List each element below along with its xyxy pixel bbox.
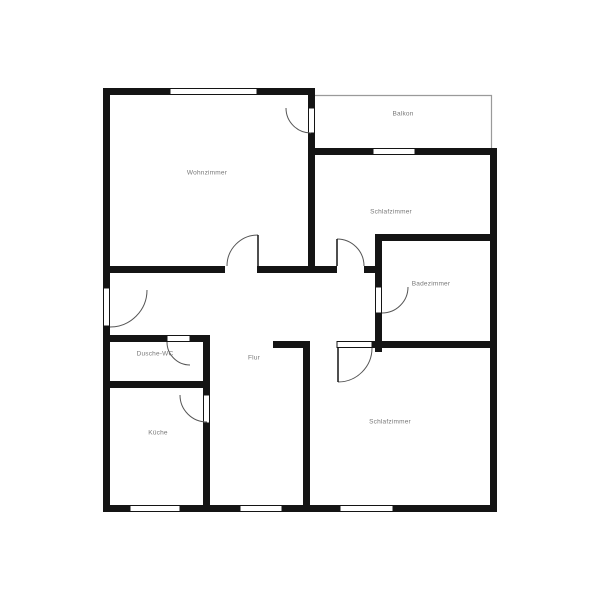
wall (415, 148, 490, 155)
wall (110, 335, 167, 342)
room-label-schlafzimmer-oben: Schlafzimmer (370, 209, 412, 216)
door-arc-balcony (286, 108, 311, 133)
wall (490, 148, 497, 512)
balcony-outline (313, 96, 492, 151)
wall (257, 266, 337, 273)
door-arc-schlafzimmer-unten (338, 348, 372, 382)
wall (393, 505, 497, 512)
wall (282, 505, 340, 512)
door-arc-entrance (110, 290, 147, 327)
room-label-balkon: Balkon (392, 111, 413, 118)
door-arc-schlafzimmer-oben (337, 239, 364, 266)
room-label-flur: Flur (248, 355, 260, 362)
window (170, 89, 257, 95)
wall (103, 505, 130, 512)
wall (308, 148, 373, 155)
door-leaf (104, 288, 110, 326)
wall (375, 234, 490, 241)
wall (103, 88, 110, 288)
walls (103, 88, 497, 512)
door-leaf (204, 395, 210, 423)
wall (103, 326, 110, 512)
wall (180, 505, 240, 512)
wall (308, 95, 315, 108)
room-label-badezimmer: Badezimmer (412, 281, 450, 288)
door-leaves (104, 108, 382, 423)
window (373, 149, 415, 155)
balcony-edge-line (313, 96, 492, 151)
window (240, 506, 282, 512)
door-arcs (110, 108, 408, 422)
door-leaf (337, 342, 372, 348)
wall (375, 234, 382, 287)
wall (103, 88, 170, 95)
room-label-schlafzimmer-unten: Schlafzimmer (369, 419, 411, 426)
door-leaf (309, 108, 315, 133)
window (130, 506, 180, 512)
window (340, 506, 393, 512)
door-leaf-lines (258, 235, 338, 382)
floor-plan-drawing (0, 0, 600, 600)
wall (303, 341, 310, 505)
room-label-wohnzimmer: Wohnzimmer (187, 170, 227, 177)
wall (372, 341, 490, 348)
door-leaf (167, 336, 190, 342)
wall (110, 266, 225, 273)
door-arc-badezimmer (382, 287, 408, 313)
wall (257, 88, 315, 95)
room-label-kueche: Küche (148, 430, 167, 437)
wall (103, 381, 210, 388)
door-arc-wohnzimmer (227, 235, 258, 266)
wall (203, 423, 210, 505)
door-leaf (376, 287, 382, 313)
floor-plan: Wohnzimmer Balkon Schlafzimmer Badezimme… (0, 0, 600, 600)
room-label-dusche-wc: Dusche-WC (137, 351, 174, 358)
door-arc-kueche (180, 395, 207, 422)
